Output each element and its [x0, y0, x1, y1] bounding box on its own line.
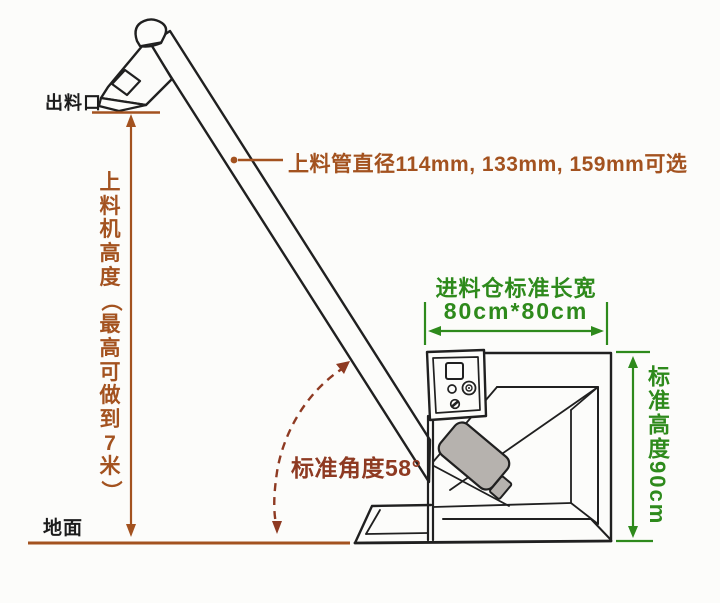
hopper-left-wall: [428, 416, 433, 540]
standard-height-label: 标准高度90cm: [641, 365, 673, 541]
ground-label: 地面: [43, 513, 83, 540]
base-skid: [355, 505, 611, 543]
conveyor-tube: [150, 31, 430, 482]
panel-display: [446, 363, 463, 379]
discharge-head: [99, 19, 172, 111]
trough-line: [433, 503, 571, 507]
leader-dot: [231, 157, 238, 164]
height-arrow: [126, 114, 136, 537]
arc-arrowhead-bottom: [272, 521, 282, 534]
machine-height-label: 上料机高度（最高可做到7米）: [96, 171, 124, 503]
feeder-machine-diagram: 出料口 地面 上料管直径114mm, 133mm, 159mm可选 上料机高度（…: [0, 0, 720, 603]
outlet-label: 出料口: [45, 89, 102, 115]
hopper-size-value-label: 80cm*80cm: [432, 298, 600, 325]
control-panel: [427, 350, 486, 420]
angle-arc: [272, 361, 350, 534]
pipe-diameter-label: 上料管直径114mm, 133mm, 159mm可选: [288, 148, 687, 178]
standard-angle-label: 标准角度58°: [291, 449, 421, 483]
arc-arrowhead-top: [336, 361, 350, 374]
